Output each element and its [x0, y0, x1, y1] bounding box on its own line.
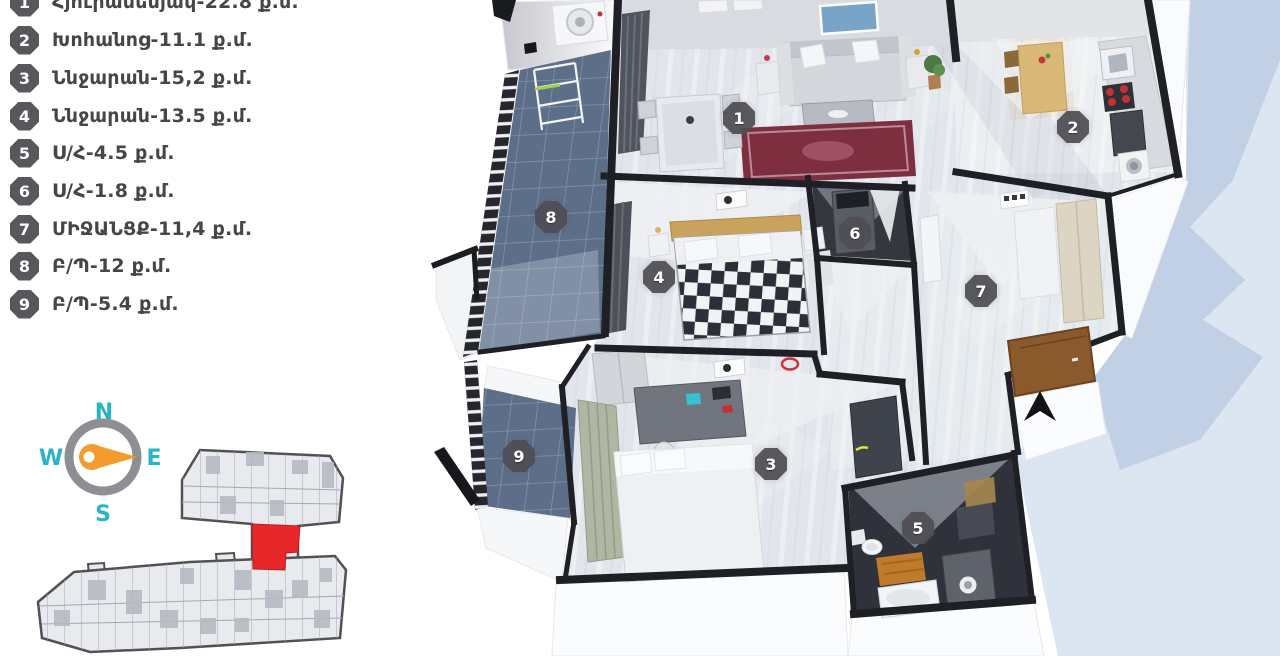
wall-picture: [820, 2, 878, 34]
room-marker-kitchen[interactable]: 2: [1057, 111, 1089, 143]
stove: [1102, 82, 1135, 112]
legend-badge: 4: [10, 102, 39, 131]
floorplan-page: 1 Հյուրասենյակ-22.8 ք.մ. 2 Խոհանոց-11.1 …: [0, 0, 1280, 656]
legend-item: 1 Հյուրասենյակ-22.8 ք.մ.: [10, 0, 299, 17]
persian-rug: [740, 120, 916, 184]
vanity: [956, 502, 995, 540]
legend-badge: 6: [10, 177, 39, 206]
sofa: [776, 34, 916, 106]
nightstand: [648, 233, 670, 257]
closet: [1014, 207, 1060, 299]
legend-badge: 1: [10, 0, 39, 17]
legend-label: Ս/Հ-4.5 ք.մ.: [52, 142, 175, 164]
side-table: [756, 61, 780, 95]
legend-label: Ննջարան-15,2 ք.մ.: [52, 67, 253, 89]
ac-unit: [552, 1, 608, 46]
open-door-leaf: [920, 215, 942, 283]
bed: [614, 444, 764, 582]
legend-item: 5 Ս/Հ-4.5 ք.մ.: [10, 138, 175, 168]
legend-item: 8 Բ/Պ-12 ք.մ.: [10, 251, 171, 281]
legend-item: 9 Բ/Պ-5.4 ք.մ.: [10, 289, 179, 319]
compass-n: N: [95, 400, 113, 425]
oven: [1110, 110, 1146, 156]
legend-label: Ննջարան-13.5 ք.մ.: [52, 105, 253, 127]
desk: [634, 380, 746, 444]
legend-badge: 8: [10, 252, 39, 281]
legend-badge: 3: [10, 64, 39, 93]
legend-label: Հյուրասենյակ-22.8 ք.մ.: [52, 0, 299, 13]
legend-badge: 5: [10, 139, 39, 168]
legend-item: 7 ՄԻՋԱՆՑՔ-11,4 ք.մ.: [10, 214, 252, 244]
mirror: [964, 477, 996, 507]
legend-badge: 7: [10, 215, 39, 244]
legend-label: Խոհանոց-11.1 ք.մ.: [52, 29, 253, 51]
legend-label: Բ/Պ-5.4 ք.մ.: [52, 293, 179, 315]
room-legend: 1 Հյուրասենյակ-22.8 ք.մ. 2 Խոհանոց-11.1 …: [10, 0, 410, 340]
legend-badge: 9: [10, 290, 39, 319]
open-door-dark: [850, 396, 902, 478]
legend-item: 6 Ս/Հ-1.8 ք.մ.: [10, 176, 175, 206]
legend-item: 3 Ննջարան-15,2 ք.մ.: [10, 63, 253, 93]
legend-badge: 2: [10, 26, 39, 55]
legend-item: 2 Խոհանոց-11.1 ք.մ.: [10, 25, 253, 55]
legend-label: Բ/Պ-12 ք.մ.: [52, 255, 171, 277]
legend-label: Ս/Հ-1.8 ք.մ.: [52, 180, 175, 202]
bath-rug: [876, 552, 926, 586]
building-floor-minimap: [30, 440, 350, 656]
legend-item: 4 Ննջարան-13.5 ք.մ.: [10, 101, 253, 131]
legend-label: ՄԻՋԱՆՑՔ-11,4 ք.մ.: [52, 218, 252, 240]
washing-machine: [1118, 150, 1150, 182]
